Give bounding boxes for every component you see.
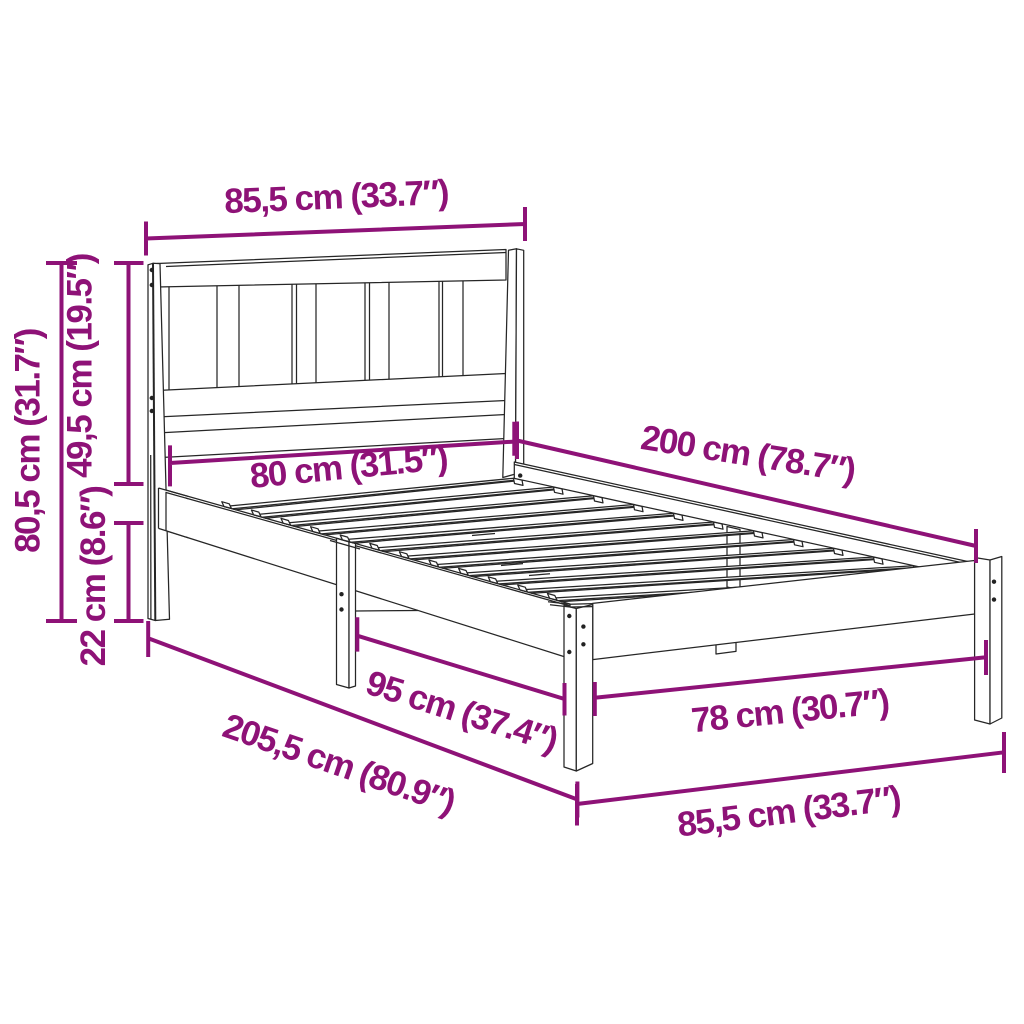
svg-text:80,5 cm (31.7″): 80,5 cm (31.7″) — [9, 329, 48, 553]
svg-text:22 cm (8.6″): 22 cm (8.6″) — [74, 487, 113, 667]
svg-text:49,5 cm (19.5″): 49,5 cm (19.5″) — [61, 254, 100, 478]
